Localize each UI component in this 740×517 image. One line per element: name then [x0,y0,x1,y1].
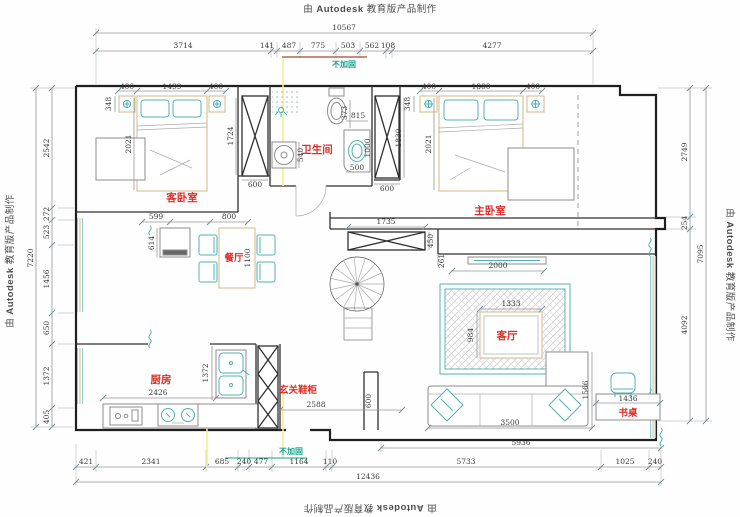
bathroom-fixtures [272,88,370,172]
dim-label: 405 [42,410,51,425]
note-not-reinforced-bottom: 不加固 [279,446,303,456]
wardrobe [242,96,268,176]
hall-cabinet [348,232,425,250]
dim-label: 2021 [124,134,133,153]
dim-label: 1100 [243,248,252,267]
dim-label: 984 [466,328,475,343]
room-label-kitchen: 厨房 [151,373,172,386]
stove [158,404,198,426]
shower-area [272,88,300,116]
dim-label: 421 [79,457,93,466]
dim-label: 373 [340,106,349,121]
dim-label: 108 [381,41,396,50]
dim-label: 1735 [376,217,395,226]
washing-machine [272,142,296,168]
dim-label: 1436 [618,394,637,403]
dim-label: 600 [364,394,373,409]
dim-label: 240 [648,457,663,466]
room-label-guest-bedroom: 客卧室 [165,191,198,204]
room-label-entry-cabinet: 玄关鞋柜 [279,384,318,396]
dim-label: 254 [680,216,689,231]
dim-label: 3500 [500,418,519,427]
dim-label: 800 [222,212,237,221]
dim-label: 650 [42,321,51,336]
dim-label: 4092 [680,315,689,334]
dim-label: 503 [341,41,356,50]
dining-furniture [160,228,275,288]
dim-label: 1499 [162,82,181,91]
dim-label: 1333 [501,299,520,308]
dim-label: 775 [311,41,326,50]
dim-label: 1566 [581,380,590,399]
dim-label: 600 [380,184,395,193]
dim-label: 348 [104,97,113,112]
dim-label: 500 [350,163,365,172]
kitchen-furniture [103,346,278,428]
dim-top-total: 10567 [332,23,356,32]
guest-desk [96,138,145,180]
side-cabinet [160,228,190,257]
room-label-dining: 餐厅 [223,252,244,264]
dim-label: 1456 [42,269,51,288]
dim-label: 1000 [363,138,372,157]
dim-bottom-total: 12436 [356,472,380,481]
dim-label: 1025 [615,457,634,466]
dim-label: 1830 [394,128,403,147]
dim-label: 1372 [42,366,51,385]
dim-label: 5733 [456,457,475,466]
note-not-reinforced-top: 不加固 [332,59,356,69]
room-label-desk: 书桌 [618,407,638,419]
floor-plan: 10567 3714 141 487 775 503 562 108 4277 … [0,0,740,517]
dim-label: 348 [403,97,412,112]
hall-furniture [330,232,425,340]
dim-label: 1724 [226,126,235,145]
pillow [173,100,201,117]
pillow [141,100,169,117]
shoe-cabinet [258,346,278,428]
dim-label: 261 [437,254,446,268]
dim-right-total: 7095 [696,244,705,263]
pillow [484,100,518,120]
dim-label: 2588 [306,400,325,409]
room-label-bathroom: 卫生间 [301,143,333,156]
dim-label: 400 [422,82,437,91]
dim-label: 614 [147,236,156,251]
small-appliance [110,407,142,425]
dim-label: 2000 [488,261,507,270]
dim-label: 400 [209,82,224,91]
dim-left-total: 7220 [26,248,35,267]
dim-label: 1372 [201,363,210,382]
spiral-staircase [330,257,384,340]
room-label-living: 客厅 [496,329,518,342]
dim-label: 272 [42,207,51,222]
dim-label: 487 [282,41,297,50]
dim-label: 600 [248,180,263,189]
double-sink [216,350,249,398]
dim-label: 562 [365,41,380,50]
dim-label: 815 [351,111,366,120]
bath-door [296,186,326,216]
pillow [444,100,478,120]
guest-bedroom-furniture [96,96,268,191]
dim-label: 523 [42,225,51,240]
dim-label: 450 [426,234,435,249]
dim-label: 400 [120,82,135,91]
bedroom-rug [508,148,574,200]
dim-label: 4277 [482,41,501,50]
dim-label: 2749 [680,142,689,161]
dim-label: 141 [260,41,274,50]
dim-label: 2021 [424,134,433,153]
dim-label: 2542 [42,138,51,157]
dim-label: 599 [149,212,164,221]
dim-label: 2426 [148,388,167,397]
dim-label: 400 [526,82,541,91]
dim-label: 2341 [141,457,160,466]
room-label-master-bedroom: 主卧室 [474,204,506,217]
dim-label: 1800 [471,82,490,91]
cad-drawing-canvas: 由 Autodesk 教育版产品制作 由 Autodesk 教育版产品制作 由 … [0,0,740,517]
dim-label: 110 [323,457,338,466]
dim-label: 3714 [173,41,192,50]
